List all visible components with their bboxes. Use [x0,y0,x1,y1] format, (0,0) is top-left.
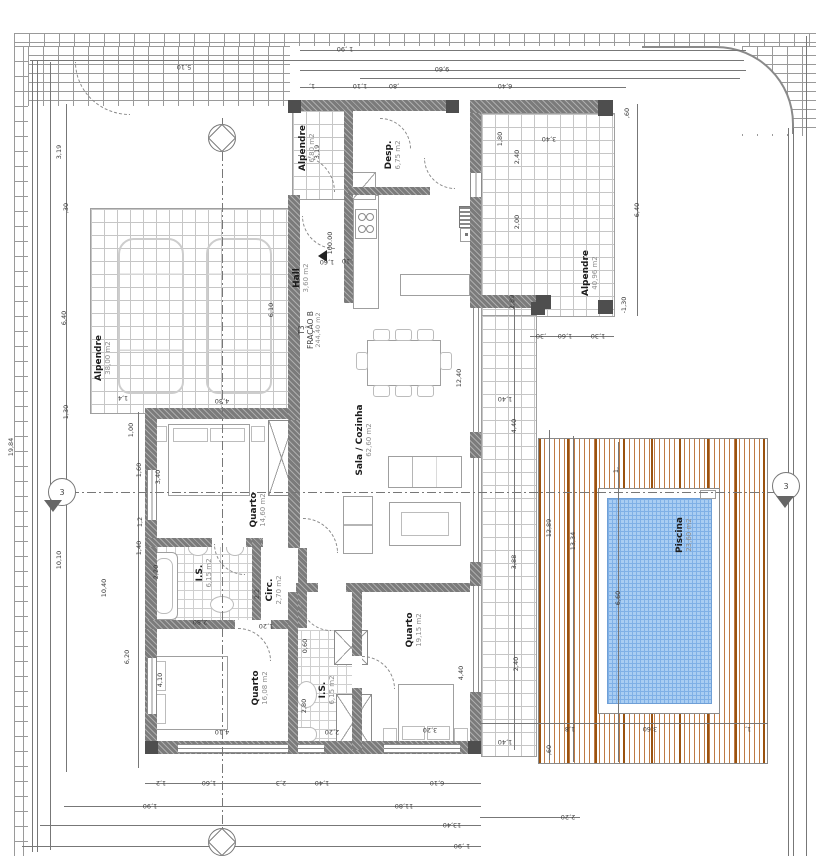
wall [344,108,353,303]
dimension-label: 10,40 [100,579,108,598]
room-area: 16,08 m2 [261,670,269,705]
dimension-label: 2,00 [513,215,521,229]
dimension-label: ,80 [389,82,399,90]
chair [356,352,368,370]
pillow [173,428,208,442]
dim-line [300,50,746,51]
door-gap [352,656,362,688]
room-area: 38,00 m2 [104,335,112,381]
dimension-label: 2,80 [300,699,308,713]
sofa-small [343,496,373,554]
dimension-label: 3,88 [510,555,518,569]
nightstand [454,728,468,742]
section-line-vertical [222,118,223,856]
nightstand [383,728,397,742]
room-area: 6,15 m2 [205,558,213,587]
dimension-label: 4,40 [510,419,518,433]
wall [252,538,261,628]
room-label-bedroom3: Quarto 19,15 m2 [405,612,423,647]
wall [470,197,481,297]
coffee-table-inner [401,512,449,536]
door-gap [318,583,346,592]
east-terrace-paving [481,315,537,757]
dimension-label: 1,90 [143,802,157,810]
room-name: Alpendre [298,125,308,171]
dimension-label: 6,10 [430,779,444,787]
room-area: 6,15 m2 [328,675,336,704]
room-label-carport: Alpendre 38,00 m2 [94,335,112,381]
wall [288,195,300,420]
column [598,100,613,116]
wall [470,432,481,458]
door-arc [424,158,455,189]
chair [395,329,412,341]
dimension-label: 3,19 [55,145,63,159]
dimension-label: 1,4 [118,394,128,402]
dimension-label: 1, [745,725,751,733]
dim-line [514,300,515,750]
section-marker-right-arrow [776,496,794,508]
burner [366,213,374,221]
fraction-title: T3 FRAÇÃO B 244,40 m2 [297,311,323,349]
room-area: 6,75 m2 [394,140,402,169]
dimension-label: ,30 [536,332,546,340]
room-name: Sala / Cozinha [355,404,365,475]
burner [358,225,366,233]
kitchen-island [400,274,470,296]
wall [288,592,298,750]
dimension-label: 1,60 [320,258,334,266]
wall [288,100,458,111]
window [384,744,460,753]
dimension-label: ,60 [623,108,631,118]
dimension-label: 1,40 [498,395,512,403]
dimension-label: 12,40 [455,369,463,388]
street-paving-topleft [28,46,290,106]
dimension-label: ,60 [545,745,553,755]
dimension-label: 6,40 [498,82,512,90]
dimension-label: 1,60 [202,779,216,787]
room-area: 2,70 m2 [275,575,283,604]
door-arc [238,628,271,661]
chair [417,329,434,341]
dimension-label: 3,20 [423,726,437,734]
sliding-door-glass [473,458,479,562]
room-name: Piscina [675,517,685,553]
column [598,300,613,314]
boundary-left-1 [32,60,33,852]
wall [470,692,481,744]
room-area: 19,15 m2 [415,612,423,647]
room-area: 62,60 m2 [365,404,373,475]
dimension-label: 0,60 [301,639,309,653]
dimension-label: 1,20 [259,622,273,630]
dimension-label: 2,2 [253,589,261,599]
wall [288,420,300,548]
dimension-label: 2,80 [193,618,207,626]
dimension-label: 3,40 [542,135,556,143]
wall [348,187,430,195]
room-label-hall: Hall 3,60 m2 [292,263,310,292]
dimension-label: 1, [612,467,620,473]
dimension-label: 6,20 [123,650,131,664]
boundary-left-2 [37,60,38,852]
section-marker-label: 3 [783,482,788,491]
dimension-label: 4,10 [215,728,229,736]
dimension-label: -1,30 [620,297,628,314]
street-paving-top [14,33,816,46]
cooktop [355,209,377,239]
dimension-label: 1 ,90 [454,842,471,850]
dimension-label: 4,40 [457,666,465,680]
room-name: Quarto [251,670,261,705]
dim-line [481,723,768,724]
dimension-label: 1,60 [135,463,143,477]
dimension-label: 1,30 [62,405,70,419]
pillow [210,428,245,442]
dim-line [50,62,51,850]
room-label-circulation: Circ. 2,70 m2 [265,575,283,604]
sofa-large [388,456,462,488]
pillow [402,726,425,740]
street-paving-left [14,46,28,856]
dimension-label: 10,10 [55,551,63,570]
room-name: Hall [292,263,302,292]
dimension-label: 2,20 [325,728,339,736]
room-name: Quarto [249,492,259,527]
kitchen-corner-cabinet [352,172,376,200]
dim-line [22,846,481,847]
door-arc [362,656,395,689]
dimension-label: 1,40 [315,779,329,787]
room-area: 3,60 m2 [302,263,310,292]
sliding-door-glass [473,308,479,432]
dimension-label: 2,3 [276,779,286,787]
dimension-label: 2,20 [152,565,160,579]
room-name: Desp. [384,140,394,169]
dimension-label: 1,2 [156,779,166,787]
dimension-label: 1,10 [353,82,367,90]
room-name: Quarto [405,612,415,647]
column [446,100,459,113]
room-label-living-kitchen: Sala / Cozinha 62,60 m2 [355,404,373,475]
boundary-right-outer [806,36,807,856]
room-label-bath2: I.S. 6,15 m2 [318,675,336,704]
dimension-label: 6,40 [60,311,68,325]
chair [373,329,390,341]
dimension-label: 3,60 [643,725,657,733]
dimension-label: 4,30 [215,397,229,405]
car-left [118,238,184,394]
dimension-label: 1,8 [565,725,575,733]
level-marker-value: 100.00 [326,232,334,255]
room-label-ne-porch: Alpendre 40,96 m2 [581,250,599,296]
dimension-label: 1,80 [496,132,504,146]
burner [366,225,374,233]
fraction-area: 244,40 m2 [315,311,323,349]
dimension-label: 1,00 [127,423,135,437]
chair [417,385,434,397]
window [470,173,482,197]
wall [470,100,613,113]
dim-line [40,825,481,826]
room-name: Alpendre [94,335,104,381]
gate-swing-arc [75,62,130,115]
section-marker-label: 3 [59,488,64,497]
room-area: 40,96 m2 [591,250,599,296]
burner [358,213,366,221]
dimension-label: 1 ,90 [337,45,354,53]
dimension-label: 3,40 [154,470,162,484]
dimension-label: 2,20 [561,813,575,821]
room-label-bedroom1: Quarto 14,60 m2 [249,492,267,527]
dimension-label: 5,10 [177,63,191,71]
dimension-label: 1,40 [498,738,512,746]
dimension-label: 3,19 [313,145,321,159]
column [145,741,158,754]
room-label-bedroom2: Quarto 16,08 m2 [251,670,269,705]
window [298,744,324,753]
dimension-label: 6,60 [614,591,622,605]
dining-table [367,340,441,386]
room-name: I.S. [195,558,205,587]
dimension-label: 11,80 [395,802,414,810]
dim-line [549,430,550,760]
section-line-horizontal [70,492,778,493]
dim-line [300,87,626,88]
room-area: 23,60 m2 [685,517,693,553]
dimension-label: ,10 [342,257,352,265]
nightstand [251,426,265,442]
dimension-label: 12,89 [545,519,553,538]
dim-line [300,70,746,71]
dimension-label: 2,40 [512,657,520,671]
dimension-label: 13,40 [443,821,462,829]
dimension-label: 1,2 [136,517,144,527]
room-name: Alpendre [581,250,591,296]
boundary-top [30,60,744,61]
boundary-top-inner [360,78,740,79]
fraction-line1: T3 [297,311,306,349]
room-label-pool: Piscina 23,60 m2 [675,517,693,553]
pool-water [607,498,712,704]
column [288,100,301,113]
dim-line [64,806,481,807]
room-label-pantry: Desp. 6,75 m2 [384,140,402,169]
dimension-label: 2,40 [513,150,521,164]
window [178,744,288,753]
dimension-label: ,30 [62,203,70,213]
door-arc [303,518,338,553]
column [468,741,481,754]
dimension-label: 4,10 [156,673,164,687]
room-area: 14,60 m2 [259,492,267,527]
dimension-label: 2,89 [508,295,516,309]
room-label-bath1: I.S. 6,15 m2 [195,558,213,587]
wall [470,113,481,173]
dimension-label: 6,10 [267,303,275,317]
room-name: I.S. [318,675,328,704]
dimension-label: 19,84 [7,438,15,457]
dim-line [573,436,574,762]
chair [395,385,412,397]
dimension-label: 13,34 [569,532,577,551]
column [531,302,545,315]
dimension-label: 1,60 [558,332,572,340]
section-marker-left-arrow [44,500,62,512]
wall [470,562,481,586]
floor-plan-canvas: 3 3 3 Alpendre 38,00 m2 Alpendre 6,80 m2… [0,0,816,856]
chair [440,352,452,370]
window-glass [473,586,479,692]
dimension-label: 1, [309,82,315,90]
dimension-label: 6,40 [633,203,641,217]
dimension-label: 9,60 [435,65,449,73]
dimension-label: 1,40 [135,541,143,555]
car-right [206,238,272,394]
dimension-label: 1,30 [591,332,605,340]
room-name: Circ. [265,575,275,604]
chair [373,385,390,397]
